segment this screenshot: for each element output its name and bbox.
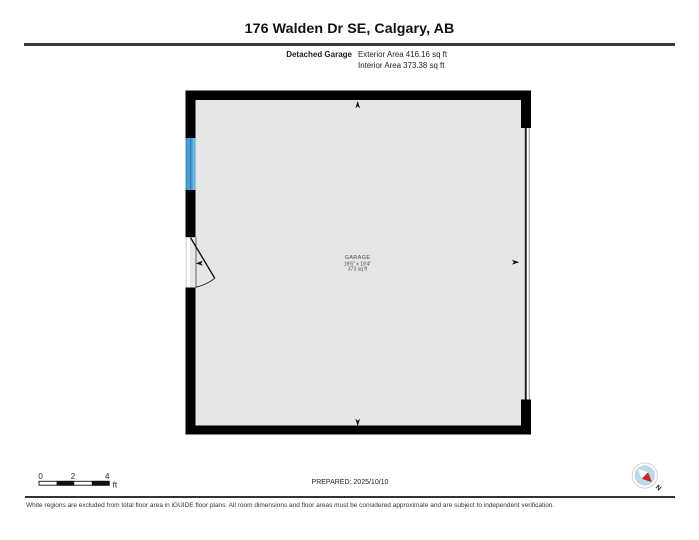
svg-text:373 sq ft: 373 sq ft [348,267,368,273]
svg-text:GARAGE: GARAGE [345,255,371,261]
svg-text:N: N [654,484,662,493]
svg-text:PREPARED: 2025/10/10: PREPARED: 2025/10/10 [312,479,389,486]
svg-text:ft: ft [113,481,118,490]
svg-text:4: 4 [105,472,110,481]
svg-text:2: 2 [71,472,76,481]
svg-text:0: 0 [38,472,43,481]
